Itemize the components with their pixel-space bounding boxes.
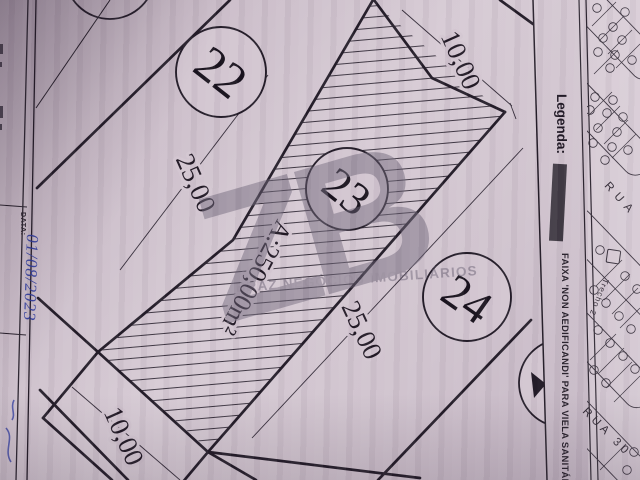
dim-lot23-front: 10,00 [98,402,150,470]
legend-item-label: FAIXA 'NON AEDIFICANDI' PARA VIELA SANIT… [560,253,571,480]
plat-drawing: DATA: 01/08/2023 [0,0,640,480]
lot-21-circle-partial [65,0,155,19]
date-handwritten-value: 01/08/2023 [20,234,42,322]
scanned-plot-plan-photo: DATA: 01/08/2023 [0,0,640,480]
legend-swatch-faixa [549,164,567,242]
legend-title: Legenda: [554,94,569,154]
date-field-label: DATA: [19,212,26,236]
form-margin [0,0,110,480]
signature-ink-squiggle [6,400,14,462]
margin-edge-text-fragments [0,44,3,130]
